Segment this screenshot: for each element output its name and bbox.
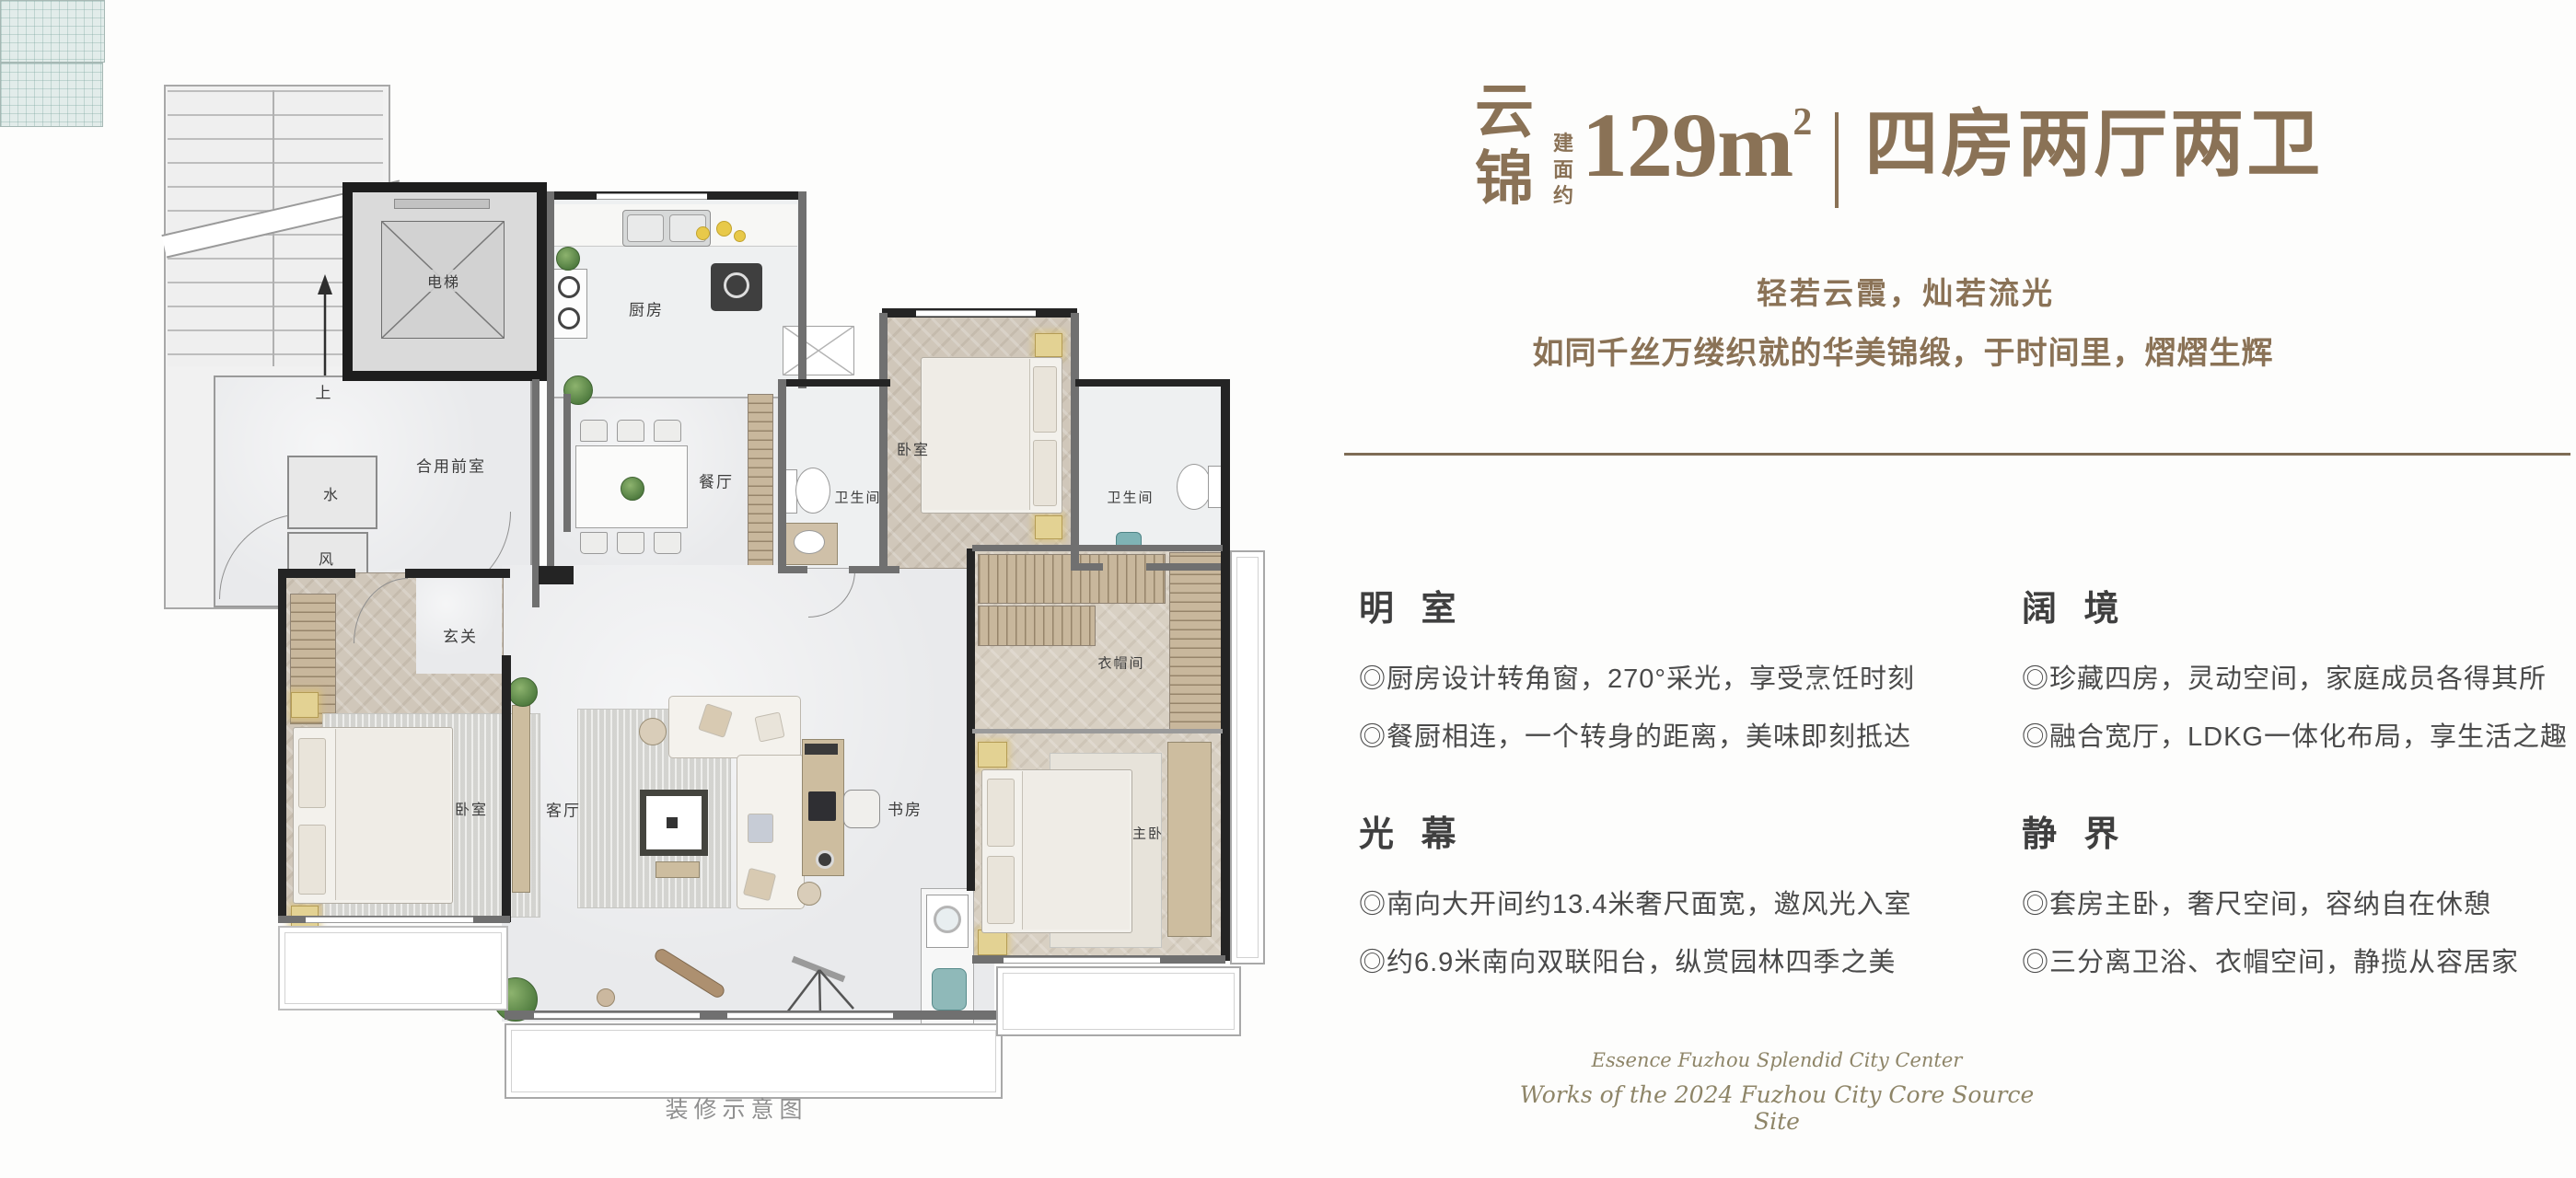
feature-item: ◎套房主卧，奢尺空间，容纳自在休憩 — [2022, 887, 2576, 923]
page: { "header": { "name": "云锦", "area_label"… — [0, 0, 2576, 1178]
feature-item: ◎南向大开间约13.4米奢尺面宽，邀风光入室 — [1359, 887, 1967, 923]
feature-title: 阔 境 — [2022, 580, 2576, 630]
label-bath-right: 卫生间 — [1107, 488, 1154, 507]
ac-cross-icon — [783, 326, 854, 375]
side-window-bay — [1230, 550, 1265, 964]
fruit — [734, 230, 746, 242]
feature-title: 光 幕 — [1359, 805, 1967, 856]
window — [597, 193, 707, 200]
label-water-shaft: 水 — [323, 482, 340, 504]
dining-chair — [654, 532, 681, 554]
floor-plan: 上 合用前室 水 风 电梯 厨房 餐厅 玄关 — [0, 0, 1381, 1178]
toilet — [795, 468, 830, 514]
sofa-pillow — [748, 814, 773, 843]
south-balcony — [505, 1023, 1003, 1099]
toilet — [1177, 464, 1212, 510]
window — [306, 917, 473, 923]
label-bedroom-left: 卧室 — [455, 797, 488, 819]
feature-item: ◎厨房设计转角窗，270°采光，享受烹饪时刻 — [1359, 662, 1967, 698]
sofa-pillow — [754, 711, 784, 742]
kitchen-plant — [556, 247, 580, 271]
features-column-left: 明 室 ◎厨房设计转角窗，270°采光，享受烹饪时刻 ◎餐厨相连，一个转身的距离… — [1359, 580, 1967, 1004]
nightstand-lamp — [1035, 515, 1062, 539]
title-block: 云锦 建面约 129m2 四房两厅两卫 — [1473, 79, 2323, 214]
utility-sink — [932, 968, 967, 1011]
feature-title: 静 界 — [2022, 805, 2576, 856]
fruit — [716, 221, 732, 237]
desk-plate — [816, 850, 834, 869]
wall-segment — [1146, 563, 1224, 571]
study-stool — [797, 882, 821, 906]
pillow — [987, 856, 1015, 924]
area-value: 129m2 — [1582, 99, 1811, 191]
wall-segment — [778, 379, 890, 387]
dining-chair — [617, 532, 644, 554]
dining-cabinet — [748, 394, 773, 589]
desk-chair — [843, 790, 880, 828]
desk-books — [805, 744, 838, 755]
dining-centerpiece — [621, 477, 644, 501]
wall-segment — [405, 569, 510, 578]
feature-item: ◎珍藏四房，灵动空间，家庭成员各得其所 — [2022, 662, 2576, 698]
section-divider — [1344, 453, 2570, 456]
dining-chair — [580, 420, 608, 442]
washer-drum — [934, 906, 961, 933]
living-plant — [508, 677, 538, 707]
wall-segment — [539, 566, 574, 584]
label-living: 客厅 — [546, 798, 581, 821]
label-closet: 衣帽间 — [1097, 653, 1144, 673]
wall-segment — [563, 394, 571, 532]
footer-line-1: Essence Fuzhou Splendid City Center — [1510, 1049, 2044, 1071]
master-dresser — [1167, 742, 1212, 937]
closet-wardrobe — [1169, 552, 1223, 733]
wall-segment — [1075, 379, 1227, 387]
wall-segment — [798, 191, 806, 388]
window — [916, 310, 1036, 317]
elevator-door-rail — [394, 199, 490, 209]
feature-section: 光 幕 ◎南向大开间约13.4米奢尺面宽，邀风光入室 ◎约6.9米南向双联阳台，… — [1359, 805, 1967, 981]
window — [1004, 957, 1160, 964]
area-superscript: 2 — [1793, 103, 1811, 191]
feature-item: ◎餐厨相连，一个转身的距离，美味即刻抵达 — [1359, 720, 1967, 756]
wall-segment — [1071, 313, 1079, 571]
label-front-hall: 合用前室 — [416, 454, 486, 477]
area-number: 129m — [1582, 99, 1793, 191]
layout-title: 四房两厅两卫 — [1864, 109, 2323, 182]
wall-segment — [547, 191, 554, 584]
feature-item: ◎融合宽厅，LDKG一体化布局，享生活之趣 — [2022, 720, 2576, 756]
nightstand-lamp — [978, 742, 1007, 768]
duvet — [922, 359, 1030, 510]
duvet — [1022, 771, 1130, 930]
plan-caption: 装修示意图 — [665, 1091, 807, 1125]
wall-segment — [1221, 379, 1230, 961]
toilet — [1208, 466, 1222, 508]
wall-segment — [972, 729, 1223, 733]
fruit — [696, 226, 710, 240]
tv-decor — [667, 817, 678, 828]
footer-line-2: Works of the 2024 Fuzhou City Core Sourc… — [1510, 1081, 2044, 1135]
shower-tiles — [0, 0, 105, 63]
label-bedroom-top: 卧室 — [897, 437, 930, 459]
feature-item: ◎三分离卫浴、衣帽空间，静揽从容居家 — [2022, 945, 2576, 981]
wall-segment — [1075, 563, 1103, 571]
pillow — [298, 738, 326, 808]
tv-console — [656, 861, 700, 878]
flower-bed — [278, 926, 508, 1011]
wall-segment — [278, 569, 355, 578]
label-bath-left: 卫生间 — [834, 488, 881, 507]
footer: Essence Fuzhou Splendid City Center Work… — [1510, 1049, 2044, 1135]
pillow — [298, 825, 326, 895]
stove-burner — [558, 276, 580, 298]
tagline-2: 如同千丝万缕织就的华美锦缎，于时间里，熠熠生辉 — [1433, 328, 2373, 373]
wall-segment — [502, 655, 511, 922]
stair-up-arrow-icon — [315, 272, 335, 383]
oven-dial — [724, 272, 749, 298]
feature-item: ◎约6.9米南向双联阳台，纵赏园林四季之美 — [1359, 945, 1967, 981]
label-wind-shaft: 风 — [319, 547, 335, 569]
pillow — [1033, 440, 1057, 506]
stove-burner — [558, 307, 580, 329]
vanity-basin — [794, 530, 825, 554]
wall-segment — [967, 549, 975, 891]
feature-title: 明 室 — [1359, 580, 1967, 630]
laptop — [808, 791, 836, 821]
pillow — [1033, 366, 1057, 433]
closet-wardrobe — [978, 606, 1096, 646]
wall-segment — [778, 379, 786, 572]
nightstand-lamp — [1035, 333, 1062, 357]
kitchen-sink-basin — [627, 214, 664, 242]
nightstand-lamp — [978, 930, 1007, 955]
wall-segment — [879, 313, 888, 571]
telescope-icon — [778, 941, 863, 1020]
dining-chair — [580, 532, 608, 554]
plan-name: 云锦 — [1473, 79, 1536, 214]
dining-chair — [654, 420, 681, 442]
wall-segment — [849, 566, 899, 573]
features-column-right: 阔 境 ◎珍藏四房，灵动空间，家庭成员各得其所 ◎融合宽厅，LDKG一体化布局，… — [2022, 580, 2576, 1004]
label-kitchen: 厨房 — [629, 297, 664, 320]
window — [727, 1012, 893, 1019]
label-stairs-up: 上 — [316, 380, 333, 403]
label-master: 主卧 — [1132, 824, 1164, 843]
duvet — [335, 729, 450, 900]
label-dining: 餐厅 — [699, 469, 734, 492]
wall-segment — [972, 545, 1223, 551]
nightstand-lamp — [291, 692, 319, 718]
dining-chair — [617, 420, 644, 442]
feature-section: 阔 境 ◎珍藏四房，灵动空间，家庭成员各得其所 ◎融合宽厅，LDKG一体化布局，… — [2022, 580, 2576, 756]
wall-segment — [278, 569, 286, 923]
side-table — [639, 718, 667, 745]
title-separator — [1835, 112, 1839, 208]
living-side-cabinet — [512, 705, 530, 893]
feature-section: 静 界 ◎套房主卧，奢尺空间，容纳自在休憩 ◎三分离卫浴、衣帽空间，静揽从容居家 — [2022, 805, 2576, 981]
shower-tiles — [0, 63, 103, 127]
label-elevator: 电梯 — [424, 270, 463, 292]
feature-section: 明 室 ◎厨房设计转角窗，270°采光，享受烹饪时刻 ◎餐厨相连，一个转身的距离… — [1359, 580, 1967, 756]
label-entry: 玄关 — [443, 624, 478, 647]
window — [534, 1012, 700, 1019]
tagline-1: 轻若云霞，灿若流光 — [1473, 269, 2338, 313]
area-label: 建面约 — [1552, 131, 1574, 210]
master-balcony — [996, 966, 1241, 1036]
pillow — [987, 779, 1015, 847]
label-study: 书房 — [888, 797, 922, 820]
floor-plate — [597, 988, 615, 1007]
wall-segment — [778, 566, 807, 573]
